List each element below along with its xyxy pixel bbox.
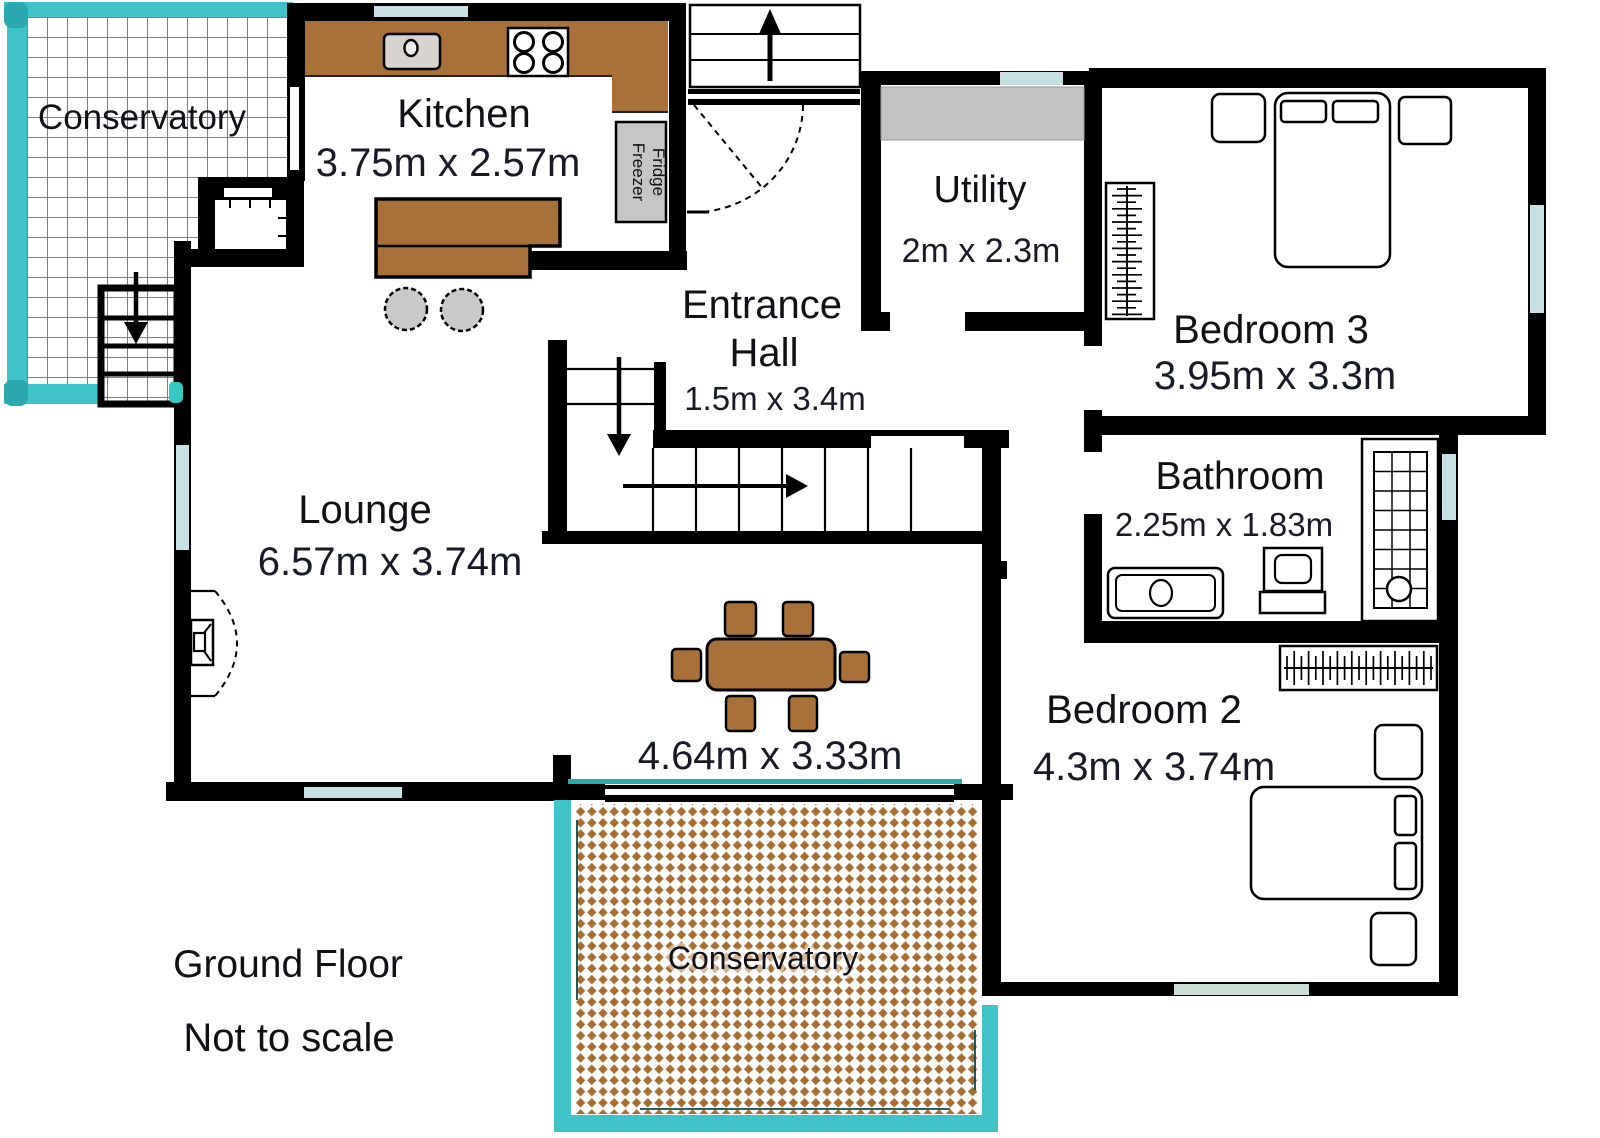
svg-text:Fridge: Fridge bbox=[649, 148, 668, 196]
svg-text:3.95m x 3.3m: 3.95m x 3.3m bbox=[1154, 354, 1396, 398]
svg-text:Conservatory: Conservatory bbox=[38, 98, 247, 137]
svg-text:2.25m x 1.83m: 2.25m x 1.83m bbox=[1115, 506, 1333, 543]
svg-text:4.64m x 3.33m: 4.64m x 3.33m bbox=[638, 734, 903, 778]
svg-text:1.5m x 3.4m: 1.5m x 3.4m bbox=[684, 380, 866, 417]
svg-text:Conservatory: Conservatory bbox=[668, 940, 858, 976]
svg-text:Hall: Hall bbox=[730, 331, 799, 375]
svg-text:2m x 2.3m: 2m x 2.3m bbox=[902, 232, 1061, 270]
svg-text:6.57m x 3.74m: 6.57m x 3.74m bbox=[258, 540, 523, 584]
svg-text:Bedroom 3: Bedroom 3 bbox=[1173, 308, 1369, 352]
svg-text:Ground Floor: Ground Floor bbox=[173, 943, 403, 986]
svg-text:Not to scale: Not to scale bbox=[183, 1016, 394, 1060]
svg-text:Lounge: Lounge bbox=[298, 488, 431, 532]
svg-text:3.75m x 2.57m: 3.75m x 2.57m bbox=[316, 141, 581, 185]
svg-text:Bathroom: Bathroom bbox=[1155, 455, 1324, 498]
svg-text:4.3m x 3.74m: 4.3m x 3.74m bbox=[1033, 745, 1275, 789]
svg-text:Kitchen: Kitchen bbox=[397, 92, 530, 136]
svg-text:Bedroom 2: Bedroom 2 bbox=[1046, 688, 1242, 732]
svg-text:Utility: Utility bbox=[934, 169, 1027, 211]
svg-text:Freezer: Freezer bbox=[629, 143, 648, 202]
svg-text:Entrance: Entrance bbox=[682, 283, 842, 327]
